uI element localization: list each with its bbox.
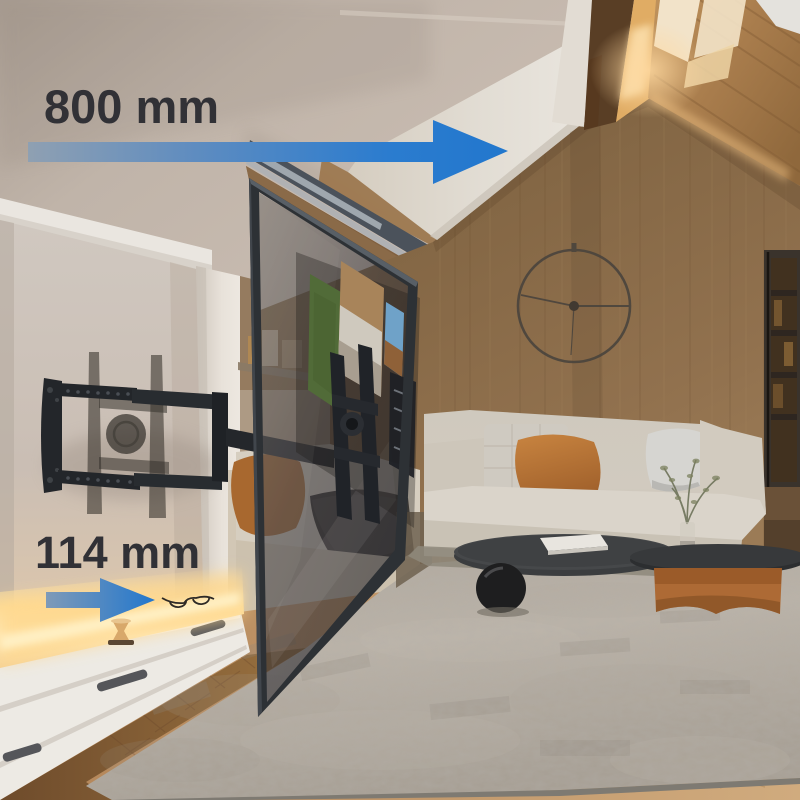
svg-text:114 mm: 114 mm xyxy=(35,527,200,578)
svg-text:800 mm: 800 mm xyxy=(44,80,219,133)
